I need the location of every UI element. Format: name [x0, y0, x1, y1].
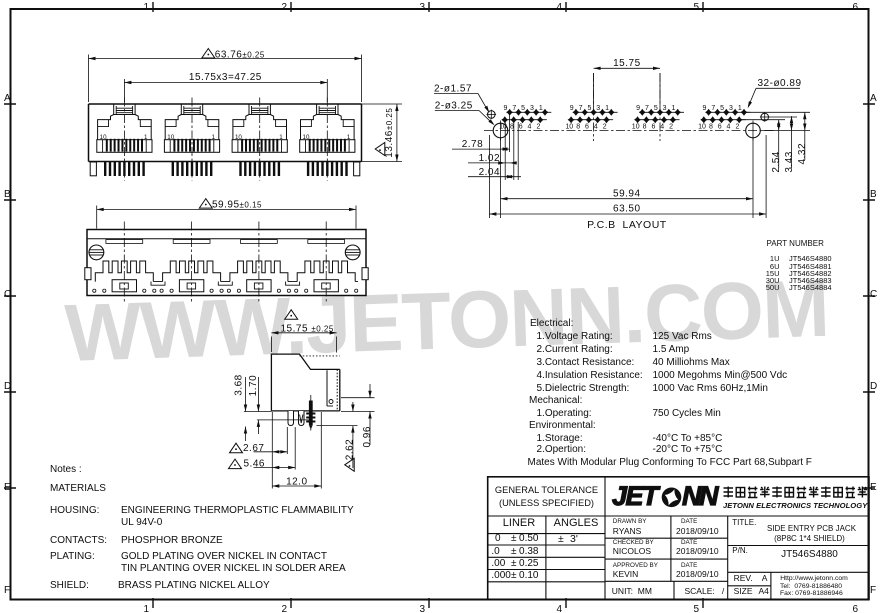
svg-text:2: 2: [536, 124, 540, 131]
svg-text:10: 10: [100, 134, 107, 141]
svg-text:10: 10: [698, 124, 706, 131]
svg-text:3: 3: [596, 105, 600, 112]
svg-text:1: 1: [143, 604, 149, 613]
svg-text:4: 4: [660, 124, 664, 131]
svg-text:8: 8: [643, 124, 647, 131]
svg-text:D: D: [870, 381, 877, 392]
svg-text:1: 1: [605, 105, 609, 112]
svg-text:4: 4: [528, 124, 532, 131]
svg-text:6: 6: [718, 124, 722, 131]
svg-text:9: 9: [503, 105, 507, 112]
svg-text:1: 1: [212, 134, 216, 141]
svg-text:5: 5: [693, 604, 699, 613]
svg-text:7: 7: [645, 105, 649, 112]
svg-text:1: 1: [279, 134, 283, 141]
svg-text:15.75x3=47.25: 15.75x3=47.25: [189, 72, 262, 83]
svg-text:2: 2: [669, 124, 673, 131]
svg-text:2: 2: [281, 604, 287, 613]
svg-text:2.67: 2.67: [243, 443, 264, 454]
svg-text:1: 1: [539, 105, 543, 112]
svg-text:5: 5: [654, 105, 658, 112]
svg-text:A: A: [870, 93, 877, 104]
svg-text:3.43: 3.43: [784, 151, 795, 172]
svg-text:15.75 ±0.25: 15.75 ±0.25: [281, 324, 334, 335]
svg-text:3: 3: [419, 2, 425, 13]
svg-text:B: B: [870, 189, 877, 200]
svg-text:6: 6: [519, 124, 523, 131]
svg-text:0.96: 0.96: [362, 426, 373, 447]
svg-text:E: E: [870, 482, 877, 493]
svg-text:E: E: [4, 482, 11, 493]
svg-text:2: 2: [603, 124, 607, 131]
svg-text:4: 4: [556, 2, 562, 13]
svg-text:1: 1: [143, 2, 149, 13]
svg-text:8: 8: [576, 124, 580, 131]
svg-text:10: 10: [499, 124, 507, 131]
svg-text:3: 3: [530, 105, 534, 112]
svg-text:9: 9: [570, 105, 574, 112]
svg-text:10: 10: [167, 134, 174, 141]
svg-text:F: F: [870, 585, 876, 596]
svg-text:1: 1: [347, 134, 351, 141]
svg-text:2.54: 2.54: [771, 151, 782, 172]
svg-text:2-ø3.25: 2-ø3.25: [435, 101, 473, 112]
svg-text:59.94: 59.94: [613, 188, 641, 199]
svg-text:5: 5: [587, 105, 591, 112]
svg-text:2-ø1.57: 2-ø1.57: [434, 84, 472, 95]
svg-text:15.75: 15.75: [613, 58, 641, 69]
svg-text:5: 5: [693, 2, 699, 13]
svg-text:7: 7: [579, 105, 583, 112]
svg-text:6: 6: [651, 124, 655, 131]
svg-text:6: 6: [585, 124, 589, 131]
svg-text:2: 2: [735, 124, 739, 131]
svg-text:32-ø0.89: 32-ø0.89: [758, 78, 802, 89]
svg-text:7: 7: [711, 105, 715, 112]
svg-text:9: 9: [636, 105, 640, 112]
svg-text:4.32: 4.32: [797, 143, 808, 164]
svg-text:A: A: [4, 93, 11, 104]
svg-text:9: 9: [702, 105, 706, 112]
svg-text:2.62: 2.62: [345, 439, 356, 460]
svg-text:6: 6: [852, 604, 858, 613]
svg-text:B: B: [4, 189, 11, 200]
svg-text:8: 8: [510, 124, 514, 131]
svg-text:3.68: 3.68: [234, 374, 245, 395]
svg-text:13.46±0.25: 13.46±0.25: [384, 108, 395, 158]
svg-text:12.0: 12.0: [286, 476, 307, 487]
svg-text:63.50: 63.50: [613, 204, 641, 215]
svg-text:3: 3: [663, 105, 667, 112]
svg-text:1: 1: [738, 105, 742, 112]
svg-text:4: 4: [727, 124, 731, 131]
svg-text:10: 10: [235, 134, 242, 141]
svg-text:10: 10: [303, 134, 310, 141]
svg-text:2: 2: [281, 2, 287, 13]
svg-text:10: 10: [565, 124, 573, 131]
svg-text:8: 8: [709, 124, 713, 131]
svg-text:4: 4: [594, 124, 598, 131]
svg-text:59.95±0.15: 59.95±0.15: [212, 200, 262, 211]
svg-text:3: 3: [729, 105, 733, 112]
svg-text:5: 5: [720, 105, 724, 112]
svg-text:2.78: 2.78: [462, 139, 483, 150]
svg-text:C: C: [870, 289, 877, 300]
svg-text:63.76±0.25: 63.76±0.25: [215, 50, 265, 61]
svg-text:3: 3: [419, 604, 425, 613]
svg-text:P.C.B LAYOUT: P.C.B LAYOUT: [587, 219, 667, 231]
svg-text:1: 1: [672, 105, 676, 112]
svg-text:5: 5: [521, 105, 525, 112]
svg-text:7: 7: [512, 105, 516, 112]
svg-text:C: C: [4, 289, 11, 300]
svg-text:4: 4: [556, 604, 562, 613]
svg-text:5.46: 5.46: [244, 458, 265, 469]
svg-text:F: F: [4, 585, 10, 596]
svg-text:10: 10: [632, 124, 640, 131]
svg-text:1: 1: [144, 134, 148, 141]
svg-text:6: 6: [852, 2, 858, 13]
svg-text:1.70: 1.70: [248, 375, 259, 396]
svg-text:D: D: [4, 381, 11, 392]
